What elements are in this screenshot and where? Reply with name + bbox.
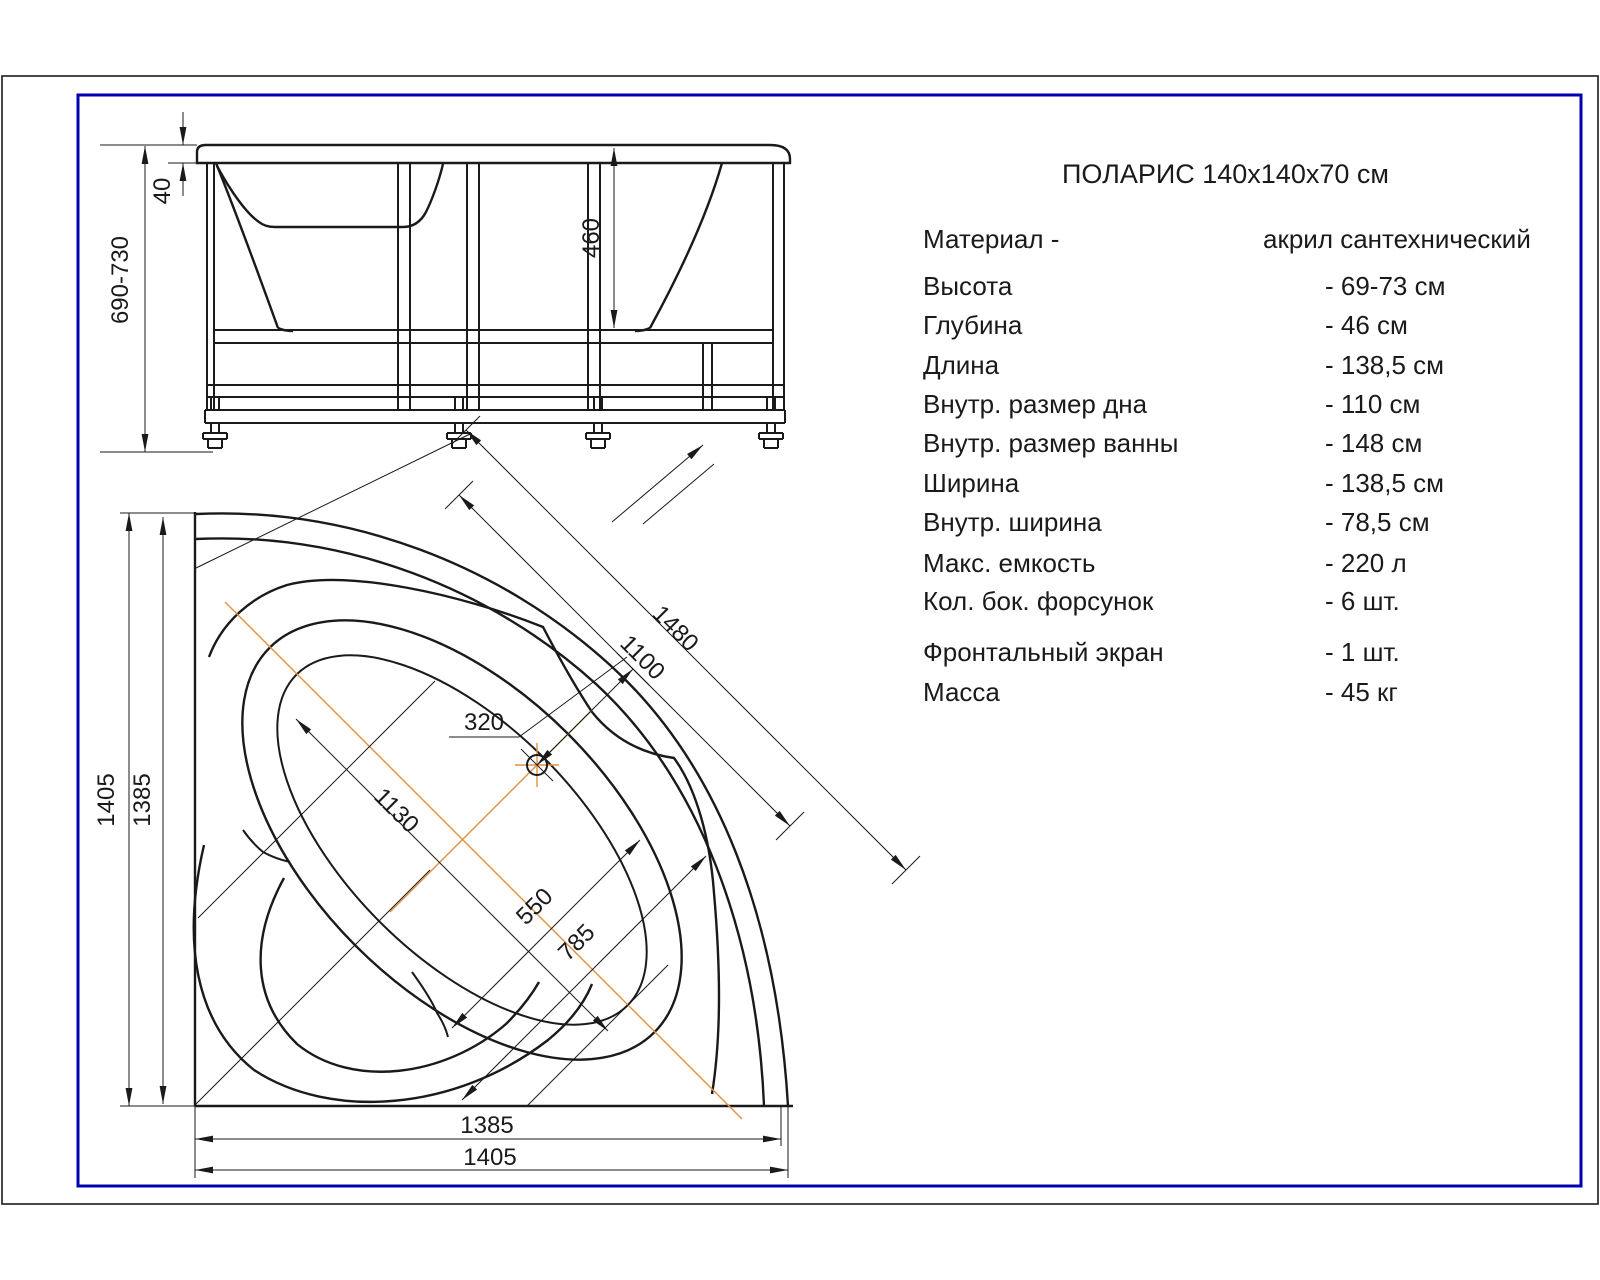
frame-posts <box>207 163 784 410</box>
view-direction-arrow <box>612 445 703 522</box>
base-studs <box>211 397 775 410</box>
corner-wing-outer <box>194 845 592 1102</box>
adjustable-feet <box>203 423 783 448</box>
spec-label: Внутр. ширина <box>923 507 1102 537</box>
dim-inner-depth: 460 <box>578 218 605 258</box>
dim-drain-offset: 320 <box>464 709 504 736</box>
dim-basin-width-inner: 550 <box>511 883 558 930</box>
spec-value: - 148 см <box>1325 428 1422 458</box>
dim-basin-length: 1130 <box>369 783 425 839</box>
spec-value: - 45 кг <box>1325 677 1398 707</box>
spec-label: Масса <box>923 677 1000 707</box>
spec-label: Внутр. размер ванны <box>923 428 1178 458</box>
spec-label: Глубина <box>923 310 1023 340</box>
spec-value: - 110 см <box>1325 389 1420 419</box>
spec-block: ПОЛАРИС 140x140x70 см Материал - акрил с… <box>923 159 1531 707</box>
spec-label: Длина <box>923 350 1000 380</box>
dim-left-outer: 1405 <box>93 773 120 826</box>
wing-junction-stubs <box>243 830 448 1037</box>
dim-left-inner: 1385 <box>129 773 156 826</box>
dim-basin-width-outer: 785 <box>553 919 600 966</box>
plan-dimensions: 1405 1385 1385 1405 1480 1100 1130 550 7… <box>93 416 920 1178</box>
spec-label: Внутр. размер дна <box>923 389 1148 419</box>
dim-overall-height: 690-730 <box>107 236 134 324</box>
spec-value: акрил сантехнический <box>1263 224 1531 254</box>
spec-value: - 220 л <box>1325 548 1407 578</box>
spec-label: Высота <box>923 271 1013 301</box>
spec-label: Ширина <box>923 468 1020 498</box>
frame-base-bar <box>205 410 785 423</box>
dim-diagonal-overall: 1480 <box>647 600 704 657</box>
dim-bottom-inner: 1385 <box>460 1112 513 1139</box>
dim-rim-thickness: 40 <box>149 178 176 205</box>
spec-value: - 138,5 см <box>1325 350 1444 380</box>
spec-value: - 6 шт. <box>1325 586 1400 616</box>
spec-value: - 69-73 см <box>1325 271 1445 301</box>
bathtub-technical-drawing: 40 690-730 460 <box>0 0 1600 1280</box>
spec-label: Кол. бок. форсунок <box>923 586 1154 616</box>
side-rim-profile <box>197 145 790 163</box>
frame-rails <box>207 330 784 410</box>
tub-section-walls <box>216 163 722 331</box>
spec-label: Фронтальный экран <box>923 637 1164 667</box>
dim-bottom-outer: 1405 <box>463 1144 516 1171</box>
side-elevation-view: 40 690-730 460 <box>100 112 790 524</box>
side-view-dimensions: 40 690-730 460 <box>100 112 714 524</box>
drawing-sheet: 40 690-730 460 <box>0 0 1600 1280</box>
plan-wall-edges <box>195 512 793 1106</box>
spec-label: Макс. емкость <box>923 548 1095 578</box>
plan-view <box>164 512 793 1138</box>
spec-value: - 46 см <box>1325 310 1408 340</box>
spec-value: - 78,5 см <box>1325 507 1430 537</box>
spec-value: - 138,5 см <box>1325 468 1444 498</box>
spec-label: Материал - <box>923 224 1059 254</box>
spec-value: - 1 шт. <box>1325 637 1400 667</box>
drawing-title: ПОЛАРИС 140x140x70 см <box>1062 159 1389 189</box>
